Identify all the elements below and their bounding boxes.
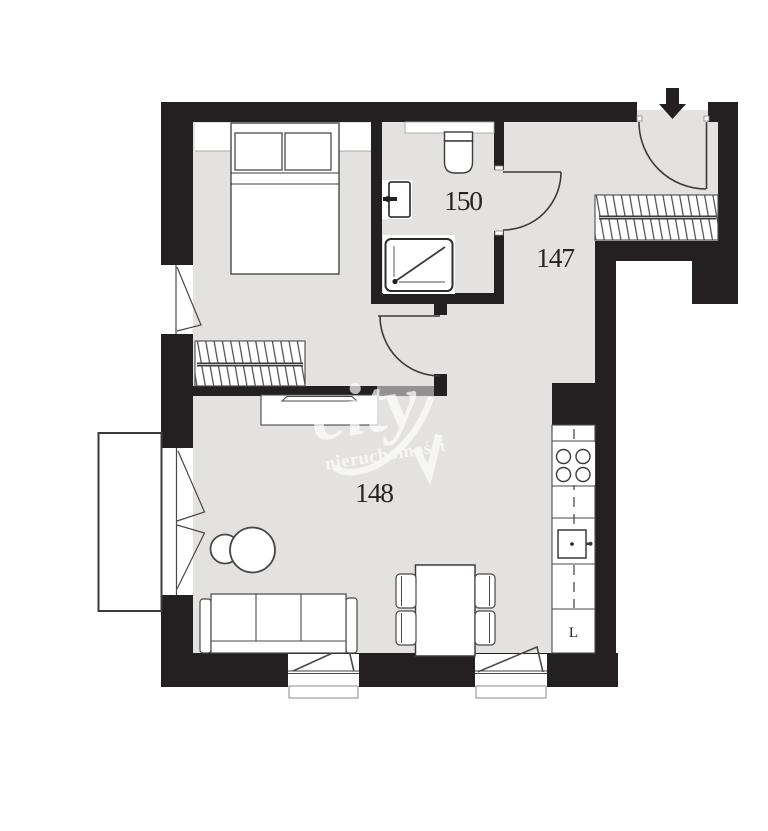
svg-text:147: 147 bbox=[536, 242, 574, 273]
svg-text:148: 148 bbox=[355, 477, 393, 508]
svg-text:150: 150 bbox=[444, 185, 482, 216]
svg-text:L: L bbox=[569, 625, 578, 641]
